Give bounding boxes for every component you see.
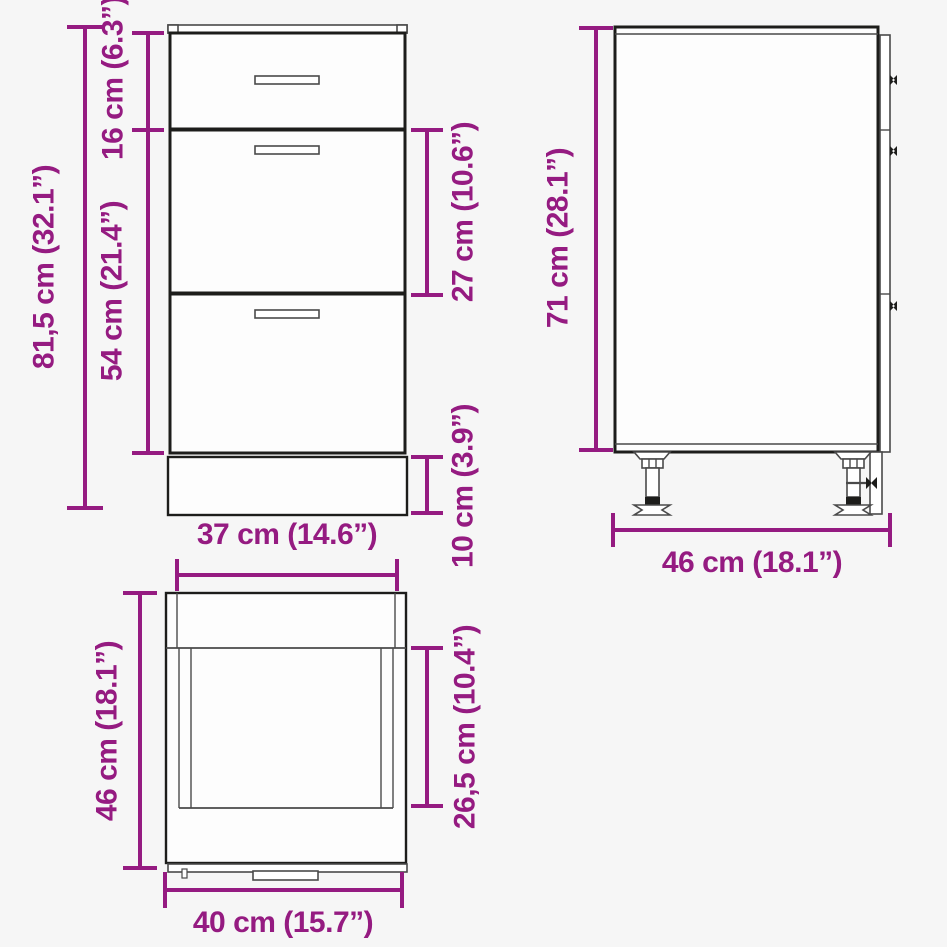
dim-label-top-width: 40 cm (15.7”) <box>193 906 373 939</box>
dim-front-drawer-heights: 16 cm (6.3”) 54 cm (21.4”) <box>96 0 165 453</box>
dim-label-lower-drawers-height: 54 cm (21.4”) <box>96 201 129 381</box>
top-body <box>166 593 406 863</box>
drawer-handle-top <box>255 76 319 84</box>
dim-label-front-width: 37 cm (14.6”) <box>197 518 377 551</box>
dim-front-middle-drawer: 27 cm (10.6”) <box>411 122 480 302</box>
dim-label-top-drawer-height: 16 cm (6.3”) <box>97 0 130 160</box>
front-cabinet-body <box>170 33 405 453</box>
side-handle-profile-1 <box>890 75 897 85</box>
dim-top-depth: 46 cm (18.1”) <box>91 593 158 868</box>
diagram-canvas: 81,5 cm (32.1”) 16 cm (6.3”) 54 cm (21.4… <box>0 0 947 947</box>
dim-front-width: 37 cm (14.6”) <box>177 518 397 591</box>
dim-front-plinth: 10 cm (3.9”) <box>411 404 480 568</box>
side-front-strip <box>880 35 890 452</box>
side-handle-profile-2 <box>890 146 897 156</box>
dim-side-depth: 46 cm (18.1”) <box>613 513 890 579</box>
foot-base <box>634 505 670 515</box>
dim-label-top-depth: 46 cm (18.1”) <box>91 641 124 821</box>
dim-label-drawer-inner-depth: 26,5 cm (10.4”) <box>449 625 482 829</box>
foot-stem <box>646 468 659 497</box>
foot-thread <box>846 497 861 505</box>
foot-nut <box>843 459 864 468</box>
dim-top-drawer-inner-depth: 26,5 cm (10.4”) <box>411 625 482 829</box>
adjustable-foot-left <box>634 452 670 515</box>
front-plinth <box>168 457 407 515</box>
foot-nut <box>642 459 663 468</box>
drawer-handle-middle <box>255 146 319 154</box>
front-view <box>168 25 407 515</box>
foot-bracket <box>835 452 871 459</box>
top-view <box>166 593 407 880</box>
dim-label-side-depth: 46 cm (18.1”) <box>662 546 842 579</box>
dim-side-height: 71 cm (28.1”) <box>542 28 614 450</box>
side-view <box>615 27 897 515</box>
drawer-handle-bottom <box>255 310 319 318</box>
top-hinge-pin <box>182 869 187 878</box>
dim-label-side-height: 71 cm (28.1”) <box>542 148 575 328</box>
foot-base <box>835 505 871 515</box>
top-drawer-handle <box>253 871 318 880</box>
dim-top-width: 40 cm (15.7”) <box>165 872 402 939</box>
dim-label-plinth-height: 10 cm (3.9”) <box>447 404 480 568</box>
side-panel <box>615 27 878 452</box>
dim-label-middle-drawer-height: 27 cm (10.6”) <box>447 122 480 302</box>
dim-label-total-height: 81,5 cm (32.1”) <box>28 165 61 369</box>
foot-thread <box>645 497 660 505</box>
cabinet-dimension-diagram: 81,5 cm (32.1”) 16 cm (6.3”) 54 cm (21.4… <box>0 0 947 947</box>
side-handle-profile-3 <box>890 301 897 311</box>
dim-front-total-height: 81,5 cm (32.1”) <box>28 27 104 508</box>
foot-bracket <box>634 452 670 459</box>
